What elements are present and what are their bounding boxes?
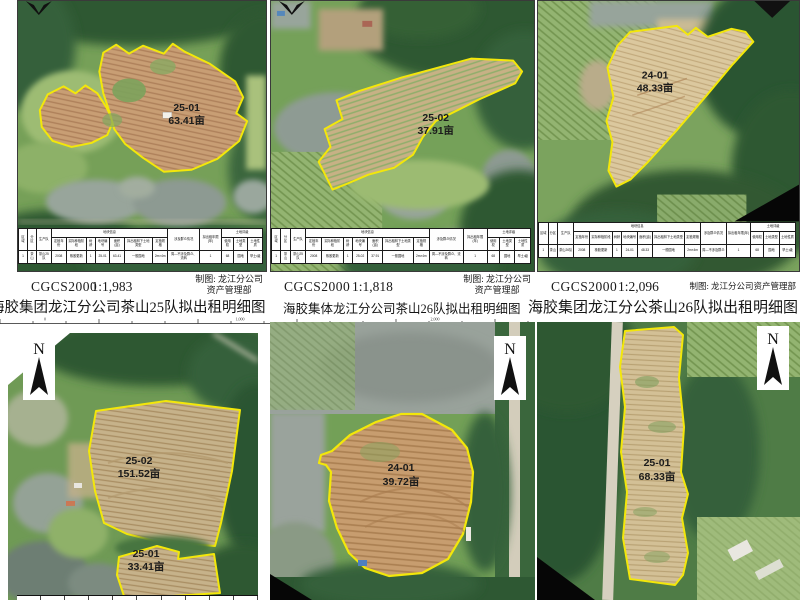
table-header-cell: 生产队 [558,223,574,245]
table-cell: 2008 [574,245,590,258]
table-cell: 橡胶更新 [321,251,343,264]
table-cell: 37.91 [368,251,383,264]
north-arrow: N [23,336,55,400]
maker-line1: 制图: 龙江分公司 [195,274,263,285]
table-header-cell: 实际种植阶段 [321,238,343,251]
table-cell: 周—不涉及群众、流转 [168,251,200,264]
table-header-cell: 拟出租年限(年) [463,229,487,251]
table-header-cell: 使用权 [222,238,234,251]
table-cell: 橡胶更新 [590,245,612,258]
table-header-cell: 树龄 [86,238,95,251]
map-panel-top-3: 24-01 48.33亩 区域分区生产队地块信息涉及群众情况拟出租年限(年)土地… [537,0,800,300]
parcel-area-label: 37.91亩 [418,124,454,137]
table-cell: 68 [222,251,234,264]
legend-table-cutoff [17,595,258,600]
table-cell: 茶山 [281,251,290,264]
table-cell: 1 [199,251,221,264]
legend-table: 区域分区生产队地块信息涉及群众情况拟出租年限(年)土地评级定植年份实际种植阶段树… [538,222,796,258]
table-cell: 周—不涉及群众 [701,245,727,258]
aerial-map-25-01-68: 25-01 68.33亩 N [537,322,800,600]
table-cell: 园地 [233,251,248,264]
table-header-cell: 定植规格 [413,238,429,251]
table-header-cell: 土地评级 [487,229,530,238]
maker-line2: 资产管理部 [463,285,531,296]
table-header-cell: 土地评级 [222,229,263,238]
table-header-cell: 地块信息 [51,229,168,238]
table-header-cell: 定植规格 [152,238,167,251]
table-header-cell: 分区 [281,229,290,251]
table-header-cell: 土地性质 [248,238,263,251]
parcel-25-02-upper [89,401,240,546]
table-cell: 1 [463,251,487,264]
parcel-code-label: 25-01 [173,103,200,114]
table-header-cell: 区域 [272,229,281,251]
table-cell: 旱土Ⅰ级 [515,251,531,264]
table-header-cell: 区域 [19,229,28,251]
table-cell: 25-02 [352,251,368,264]
maker-line1: 制图: 龙江分公司 [463,274,531,285]
table-cell: 2008 [51,251,66,264]
table-cell: 1 [272,251,281,264]
table-cell: 2008 [306,251,322,264]
table-header-cell: 实际种植阶段 [66,238,86,251]
table-header-cell: 拟出租年限(年) [726,223,751,245]
table-cell: 63.41 [110,251,124,264]
table-cell: 一般园地 [653,245,685,258]
parcel-area-label: 63.41亩 [168,114,204,127]
parcel-area-label: 33.41亩 [128,560,165,573]
table-header-cell: 涉及群众情况 [168,229,200,251]
parcel-code-label: 25-02 [126,455,153,467]
maker-line1: 制图: 龙江分公司资产管理部 [690,281,797,292]
table-header-cell: 拟出租年限(年) [199,229,221,251]
maker-label: 制图: 龙江分公司资产管理部 [690,281,797,292]
table-cell: 橡胶更新 [66,251,86,264]
table-header-cell: 定植规格 [685,232,701,245]
table-header-cell: 土地类型 [763,232,779,245]
parcel-code-label: 25-01 [644,457,671,469]
table-cell: 茶山25队 [36,251,51,264]
table-header-cell: 拟出租林下土地类型 [124,238,152,251]
table-header-cell: 土地评级 [751,223,796,232]
table-header-cell: 拟出租林下土地类型 [383,238,414,251]
map-footer: CGCS2000 1:2,096 制图: 龙江分公司资产管理部 [537,272,800,300]
table-cell: 2m×4m [152,251,167,264]
table-cell: 68 [487,251,499,264]
table-header-cell: 土地类型 [233,238,248,251]
north-letter: N [767,331,779,348]
map-title-1: 海胶集团龙江分公司茶山25队拟出租明细图 [0,299,266,317]
parcel-area-label: 68.33亩 [639,470,676,483]
north-letter: N [504,341,516,358]
parcel-area-label: 48.33亩 [637,81,673,94]
table-cell: 茶山26队 [558,245,574,258]
scale-label: 1:1,983 [17,279,207,295]
table-header-cell: 定植年份 [574,232,590,245]
table-cell: 48.33 [638,245,653,258]
table-cell: 25-01 [95,251,110,264]
table-cell: 1 [539,245,549,258]
map-footer: CGCS2000 1:1,818 制图: 龙江分公司 资产管理部 [270,272,535,300]
parcel-area-label: 39.72亩 [383,475,420,488]
map-sheet: 25-01 63.41亩 区域分区生产队地块信息涉及群众情况拟出租年限(年)土地… [0,0,800,600]
table-cell: 一般园地 [383,251,414,264]
table-header-cell: 地块信息 [574,223,701,232]
table-header-cell: 面积(亩) [110,238,124,251]
legend-table: 区域分区生产队地块信息涉及群众情况拟出租年限(年)土地评级定植年份实际种植阶段树… [271,228,531,264]
table-cell: 周—不涉及群众、流转 [429,251,463,264]
table-header-cell: 地块编号 [622,232,638,245]
ruler-label-1: 0 [44,317,46,322]
maker-line2: 资产管理部 [195,285,263,296]
table-header-cell: 定植年份 [51,238,66,251]
table-header-cell: 涉及群众情况 [701,223,727,245]
table-header-cell: 分区 [548,223,558,245]
table-cell: 园地 [763,245,779,258]
maker-label: 制图: 龙江分公司 资产管理部 [195,274,263,297]
table-header-cell: 使用权 [487,238,499,251]
north-arrow: N [494,336,526,400]
map-footer: CGCS2000 1:1,983 制图: 龙江分公司 资产管理部 [17,272,267,300]
table-cell: 1 [612,245,622,258]
table-header-cell: 定植年份 [306,238,322,251]
table-cell: 2m×4m [685,245,701,258]
table-cell: 1 [86,251,95,264]
table-header-cell: 实际种植阶段 [590,232,612,245]
table-header-cell: 土地类型 [499,238,514,251]
table-header-cell: 地块编号 [352,238,368,251]
table-cell: 一般园地 [124,251,152,264]
parcel-code-label: 25-01 [133,548,160,560]
table-cell: 园地 [499,251,514,264]
table-header-cell: 分区 [27,229,36,251]
parcel-code-label: 25-02 [422,113,449,124]
table-header-cell: 涉及群众情况 [429,229,463,251]
table-header-cell: 区域 [539,223,549,245]
table-header-cell: 生产队 [36,229,51,251]
aerial-map-25-02-151: 25-02 151.52亩 25-01 33.41亩 N [8,333,258,600]
table-header-cell: 地块编号 [95,238,110,251]
ruler-label-2: 1,000 [236,317,245,323]
table-cell: 68 [751,245,764,258]
north-arrow: N [757,326,789,390]
table-cell: 茶山 [27,251,36,264]
parcel-code-label: 24-01 [642,70,669,81]
aerial-map-24-01-39: 24-01 39.72亩 N [270,322,535,600]
table-cell: 1 [343,251,352,264]
table-header-cell: 使用权 [751,232,764,245]
legend-table: 区域分区生产队地块信息涉及群众情况拟出租年限(年)土地评级定植年份实际种植阶段树… [18,228,263,264]
north-letter: N [33,341,45,358]
table-header-cell: 树龄 [343,238,352,251]
parcel-25-01 [620,327,688,585]
table-cell: 1 [19,251,28,264]
table-cell: 茶山25队 [290,251,306,264]
table-cell: 24-01 [622,245,638,258]
map-panel-bottom-2: 24-01 39.72亩 N [270,322,535,600]
parcel-area-label: 151.52亩 [118,467,161,480]
map-title-3: 海胶集团龙江分公茶山26队拟出租明细图 [528,299,798,317]
table-cell: 旱土Ⅰ级 [779,245,795,258]
table-header-cell: 地块信息 [306,229,429,238]
table-header-cell: 拟出租林下土地类型 [653,232,685,245]
parcel-code-label: 24-01 [388,462,415,474]
table-cell: 茶山 [548,245,558,258]
scale-label: 1:1,818 [270,279,475,295]
table-header-cell: 土地性质 [515,238,531,251]
maker-label: 制图: 龙江分公司 资产管理部 [463,274,531,297]
table-header-cell: 土地性质 [779,232,795,245]
map-panel-top-2: 25-02 37.91亩 区域分区生产队地块信息涉及群众情况拟出租年限(年)土地… [270,0,535,300]
map-panel-bottom-3: 25-01 68.33亩 N [537,322,800,600]
map-panel-bottom-1: 25-02 151.52亩 25-01 33.41亩 N [8,333,258,600]
table-cell: 旱土Ⅰ级 [248,251,263,264]
map-panel-top-1: 25-01 63.41亩 区域分区生产队地块信息涉及群众情况拟出租年限(年)土地… [17,0,267,300]
table-cell: 2m×4m [413,251,429,264]
table-header-cell: 面积(亩) [638,232,653,245]
table-header-cell: 树龄 [612,232,622,245]
table-cell: 1 [726,245,751,258]
table-header-cell: 面积(亩) [368,238,383,251]
table-header-cell: 生产队 [290,229,306,251]
